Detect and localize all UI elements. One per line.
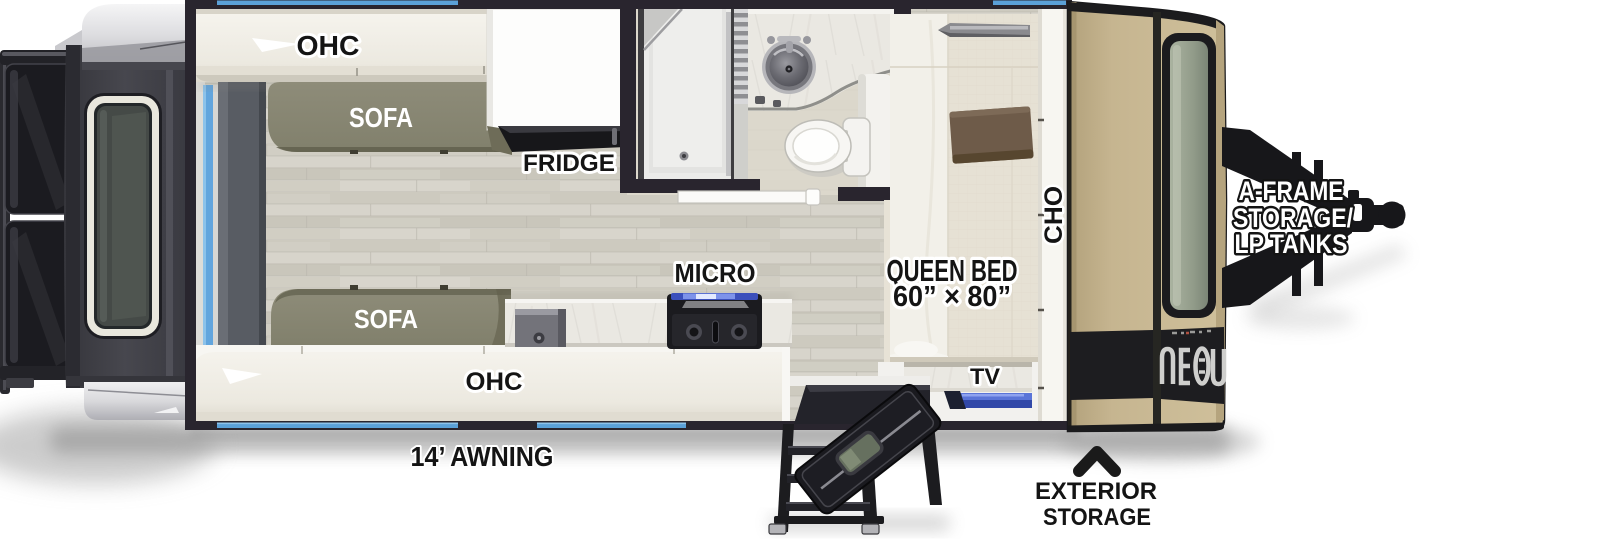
svg-text:STORAGE: STORAGE (1043, 504, 1151, 531)
svg-text:SOFA: SOFA (349, 102, 413, 133)
svg-text:A-FRAME: A-FRAME (1239, 176, 1344, 206)
svg-text:EXTERIOR: EXTERIOR (1035, 478, 1157, 505)
svg-text:OHC: OHC (466, 368, 523, 396)
svg-text:TV: TV (970, 364, 1000, 389)
svg-text:SOFA: SOFA (354, 304, 418, 334)
svg-text:14’ AWNING: 14’ AWNING (411, 441, 554, 472)
svg-text:MICRO: MICRO (675, 258, 756, 288)
svg-text:60” × 80”: 60” × 80” (893, 281, 1011, 313)
svg-text:CHO: CHO (1040, 186, 1068, 244)
svg-text:OHC: OHC (297, 30, 360, 61)
svg-text:LP TANKS: LP TANKS (1235, 229, 1348, 259)
svg-text:FRIDGE: FRIDGE (523, 150, 615, 177)
